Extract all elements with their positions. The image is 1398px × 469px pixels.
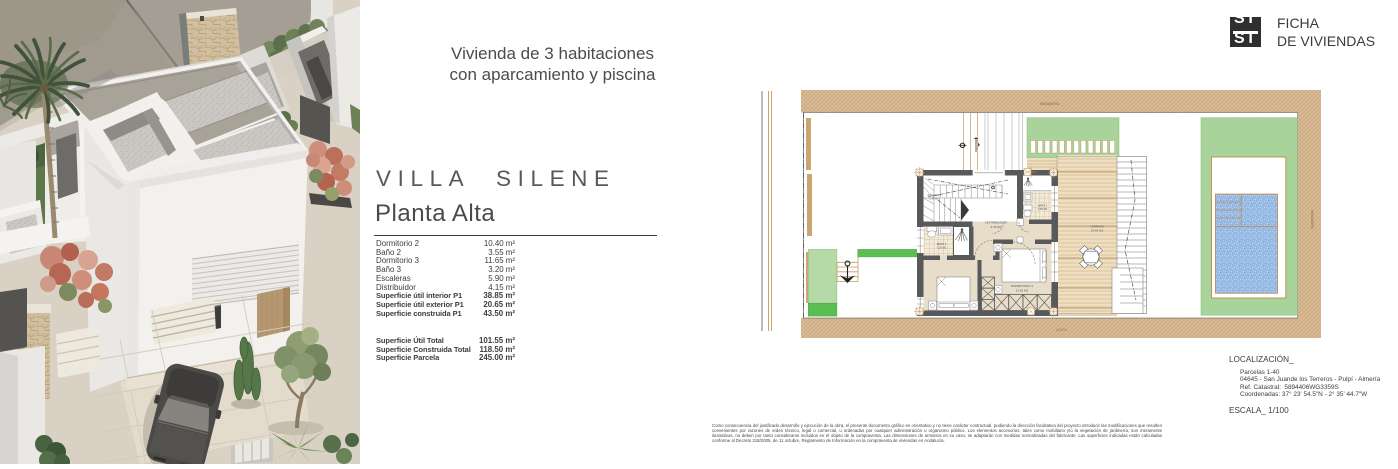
- svg-text:23.65 M2: 23.65 M2: [1091, 229, 1104, 233]
- svg-text:11.65 M2: 11.65 M2: [1016, 288, 1029, 292]
- svg-text:MEDIANERA: MEDIANERA: [1310, 210, 1314, 230]
- svg-text:MEDIANERA: MEDIANERA: [1040, 102, 1060, 106]
- svg-text:3.25 M2: 3.25 M2: [937, 246, 947, 250]
- svg-text:4.15 M2: 4.15 M2: [991, 225, 1002, 229]
- svg-text:3.55 M2: 3.55 M2: [1038, 207, 1048, 211]
- svg-text:ACERA: ACERA: [1056, 328, 1068, 332]
- svg-text:5.90 M2: 5.90 M2: [930, 197, 939, 200]
